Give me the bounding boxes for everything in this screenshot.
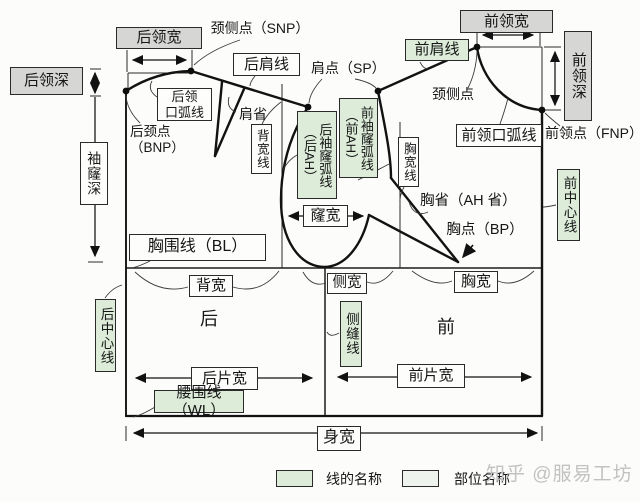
label-front-neck-depth: 前领深 — [564, 31, 592, 121]
label-waist-line-wl: 腰围线（WL） — [154, 390, 244, 413]
label-body-width: 身宽 — [317, 426, 361, 451]
pattern-terminology-diagram: 后领宽 颈侧点（SNP） 后领深 后肩线 肩点（SP） 前肩线 前领宽 前领深 … — [0, 0, 640, 502]
legend-line-name-swatch — [276, 470, 313, 487]
label-shoulder-dart: 肩省 — [236, 106, 270, 123]
label-armhole-depth: 袖窿深 — [80, 142, 108, 205]
watermark-text: 知乎 @服易工坊 — [486, 462, 640, 488]
label-front-neckline-curve: 前领口弧线 — [456, 124, 542, 147]
label-back-neck-depth: 后领深 — [10, 67, 83, 95]
label-bust-line-bl: 胸围线（BL） — [129, 234, 266, 261]
label-armhole-width: 窿宽 — [303, 205, 348, 227]
label-side-neck-point-snp: 颈侧点（SNP） — [210, 19, 310, 37]
label-front-neck-width: 前领宽 — [460, 10, 553, 33]
label-back-center-line: 后中心线 — [95, 299, 116, 372]
label-front-neck-point-fnp: 前领点（FNP） — [545, 125, 640, 142]
label-bust-dart-ah: 胸省（AH 省） — [420, 193, 514, 211]
label-back-neck-point-bnp: 后颈点 （BNP） — [130, 123, 188, 157]
legend-part-name-swatch — [402, 470, 439, 487]
label-back-shoulder-line: 后肩线 — [233, 53, 300, 76]
label-chest-width-line: 胸宽线 — [398, 137, 419, 187]
label-back-width: 背宽 — [189, 275, 233, 297]
label-back-neck-width: 后领宽 — [116, 27, 202, 49]
label-side-seam-line: 侧缝线 — [340, 301, 362, 367]
label-front-armhole-curve: 前袖窿弧线 （前AH） — [339, 98, 378, 178]
label-chest-width: 胸宽 — [454, 271, 498, 293]
label-front-piece-width: 前片宽 — [397, 364, 465, 388]
label-front-shoulder-line: 前肩线 — [405, 39, 469, 61]
label-side-neck-point-front: 颈侧点 — [427, 86, 479, 103]
label-back-width-line: 背宽线 — [251, 124, 272, 174]
label-shoulder-point-sp: 肩点（SP） — [311, 60, 381, 77]
label-back-piece: 后 — [198, 310, 220, 330]
label-front-center-line: 前中心线 — [557, 169, 580, 241]
label-back-armhole-curve: 后袖窿弧线 （后AH） — [297, 111, 337, 199]
legend-line-name-label: 线的名称 — [319, 471, 389, 487]
label-bust-point-bp: 胸点（BP） — [445, 222, 525, 240]
label-side-width: 侧宽 — [327, 273, 367, 294]
label-back-neckline-curve: 后领 口弧线 — [157, 88, 212, 121]
label-front-piece: 前 — [435, 318, 457, 338]
